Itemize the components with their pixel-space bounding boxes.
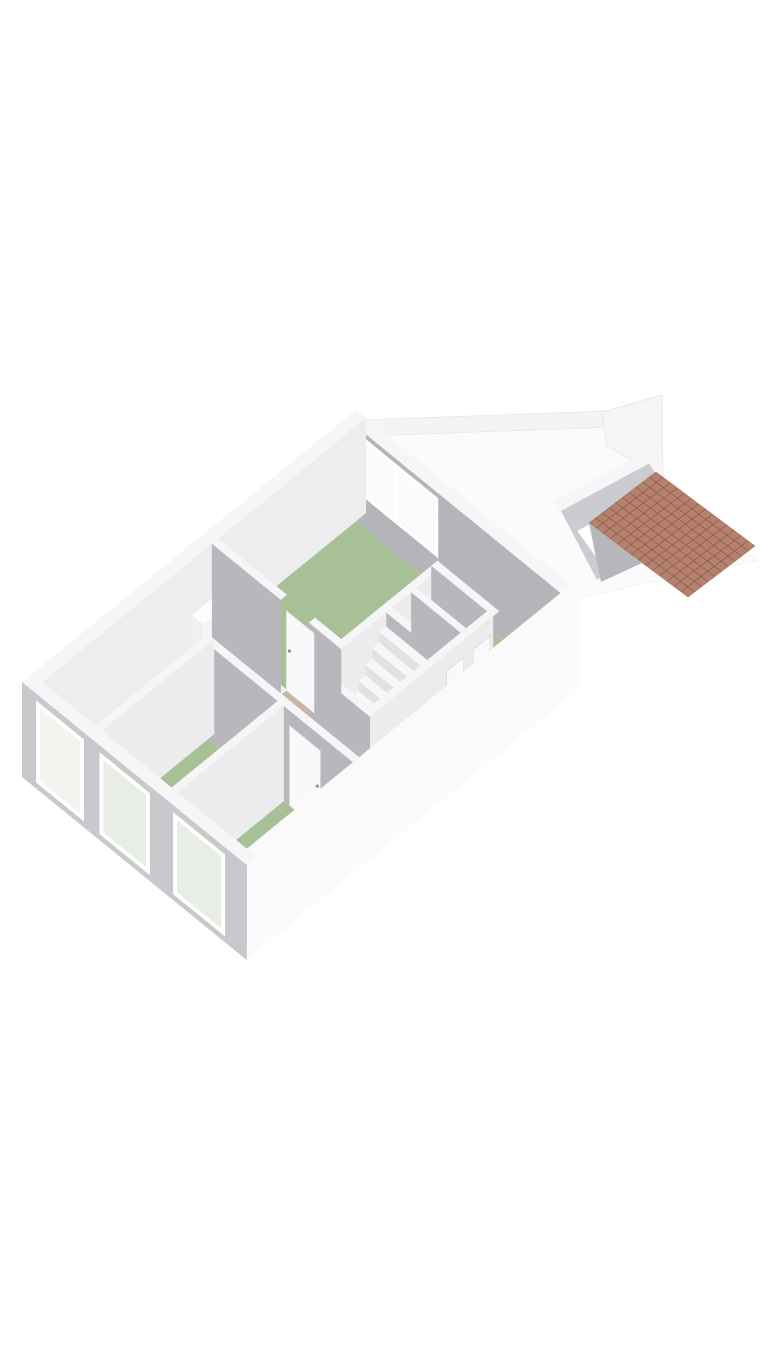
bedroom3-door-handle (316, 785, 319, 788)
living-room-door-handle (288, 649, 291, 652)
floorplan-3d-rendering (0, 0, 768, 1365)
floorplan-stage (0, 0, 768, 1365)
